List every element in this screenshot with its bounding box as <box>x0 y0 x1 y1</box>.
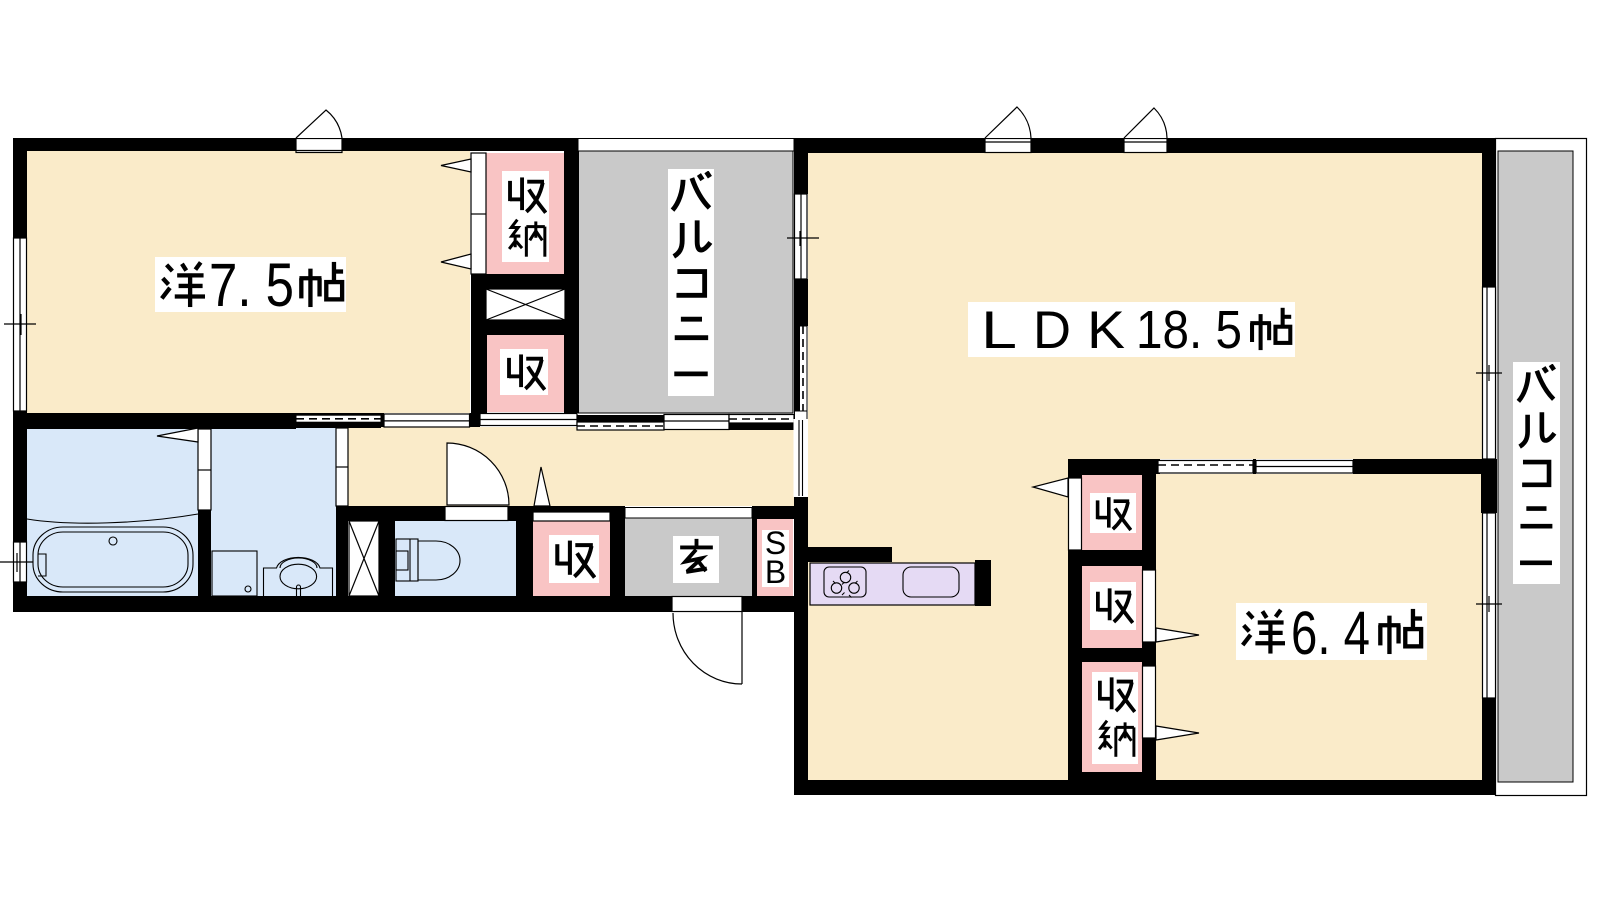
svg-text:18. 5: 18. 5 <box>1136 300 1242 360</box>
svg-text:B: B <box>765 554 786 590</box>
svg-text:L: L <box>981 301 1017 360</box>
svg-text:7. 5: 7. 5 <box>209 251 294 319</box>
svg-text:6. 4: 6. 4 <box>1291 599 1370 667</box>
svg-text:D: D <box>1033 301 1071 360</box>
svg-text:K: K <box>1087 301 1125 360</box>
